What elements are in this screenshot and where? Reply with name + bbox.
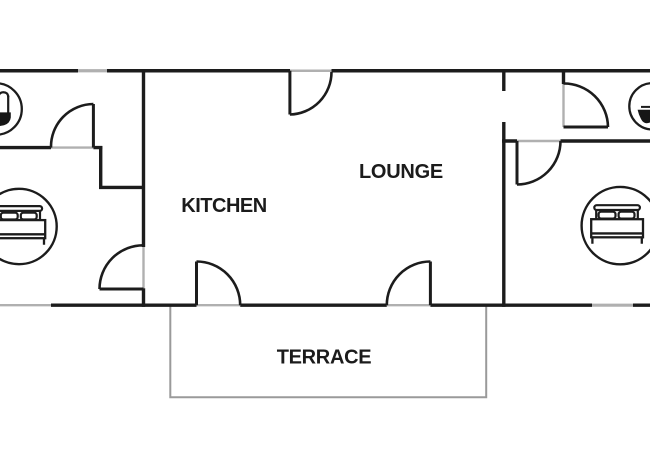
svg-text:KITCHEN: KITCHEN (181, 195, 266, 217)
svg-text:LOUNGE: LOUNGE (359, 161, 443, 183)
svg-text:TERRACE: TERRACE (277, 346, 372, 368)
